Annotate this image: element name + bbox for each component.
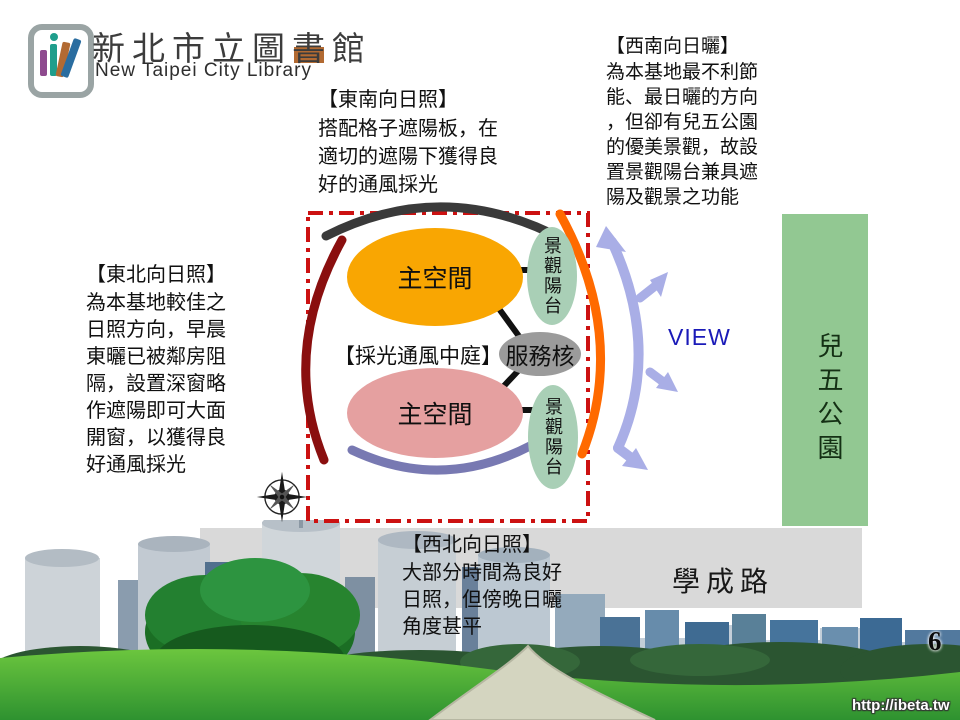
logo-book-purple <box>40 50 47 76</box>
annotation-line: 為本基地較佳之 <box>86 290 226 317</box>
annotation-line: 好的通風採光 <box>318 171 498 199</box>
logo-dot <box>50 33 58 41</box>
library-subtitle: New Taipei City Library <box>95 60 312 82</box>
balcony-bottom-label: 景觀陽台 <box>544 397 562 477</box>
annotation-line: 角度甚平 <box>402 614 562 641</box>
main-space-top-label: 主空間 <box>397 259 472 295</box>
annotation-northeast: 【東北向日照】 為本基地較佳之 日照方向，早晨 東曬已被鄰房阻 隔，設置深窗略 … <box>86 262 226 479</box>
annotation-line: 的優美景觀，故設 <box>606 135 758 160</box>
view-arrows <box>596 226 678 470</box>
park-label: 兒五公園 <box>810 332 847 468</box>
road-label: 學成路 <box>672 560 774 600</box>
balcony-bottom-bubble: 景觀陽台 <box>528 385 578 489</box>
annotation-title: 【西北向日照】 <box>402 532 562 559</box>
annotation-line: 作遮陽即可大面 <box>86 398 226 425</box>
annotation-line: ，但卻有兒五公園 <box>606 110 758 135</box>
grass <box>0 649 960 720</box>
service-core-label: 服務核 <box>506 337 575 371</box>
page-number: 6 <box>928 626 942 657</box>
balcony-top-label: 景觀陽台 <box>543 236 561 316</box>
treeline <box>0 642 960 696</box>
balcony-top-bubble: 景觀陽台 <box>527 227 577 325</box>
annotation-line: 能、最日曬的方向 <box>606 85 758 110</box>
annotation-northwest: 【西北向日照】 大部分時間為良好 日照，但傍晚日曬 角度甚平 <box>402 532 562 641</box>
annotation-southwest: 【西南向日曬】 為本基地最不利節 能、最日曬的方向 ，但卻有兒五公園 的優美景觀… <box>606 34 758 210</box>
annotation-line: 置景觀陽台兼具遮 <box>606 160 758 185</box>
annotation-title: 【西南向日曬】 <box>606 34 758 59</box>
walkway-path <box>430 646 655 720</box>
annotation-title: 【東南向日照】 <box>318 86 498 114</box>
annotation-line: 為本基地最不利節 <box>606 60 758 85</box>
annotation-line: 隔，設置深窗略 <box>86 371 226 398</box>
annotation-line: 陽及觀景之功能 <box>606 185 758 210</box>
atrium-label: 【採光通風中庭】 <box>334 340 502 370</box>
annotation-line: 大部分時間為良好 <box>402 560 562 587</box>
annotation-line: 日照，但傍晚日曬 <box>402 587 562 614</box>
main-space-top-bubble: 主空間 <box>347 228 523 326</box>
view-label: VIEW <box>668 324 731 351</box>
annotation-southeast: 【東南向日照】 搭配格子遮陽板，在 適切的遮陽下獲得良 好的通風採光 <box>318 86 498 199</box>
annotation-line: 東曬已被鄰房阻 <box>86 344 226 371</box>
watermark: http://ibeta.tw <box>852 697 950 714</box>
annotation-line: 日照方向，早晨 <box>86 317 226 344</box>
park-block: 兒五公園 <box>782 214 868 526</box>
main-space-bottom-label: 主空間 <box>397 395 472 431</box>
library-logo-icon <box>28 24 94 98</box>
slide: 新北市立圖書館 New Taipei City Library 兒五公園 學成路 <box>0 0 960 720</box>
annotation-line: 適切的遮陽下獲得良 <box>318 143 498 171</box>
main-space-bottom-bubble: 主空間 <box>347 368 523 458</box>
annotation-line: 搭配格子遮陽板，在 <box>318 115 498 143</box>
annotation-line: 好通風採光 <box>86 452 226 479</box>
annotation-line: 開窗，以獲得良 <box>86 425 226 452</box>
annotation-title: 【東北向日照】 <box>86 262 226 289</box>
distant-skyline <box>560 620 960 665</box>
compass-rose-icon <box>255 470 309 524</box>
service-core-bubble: 服務核 <box>499 332 581 376</box>
